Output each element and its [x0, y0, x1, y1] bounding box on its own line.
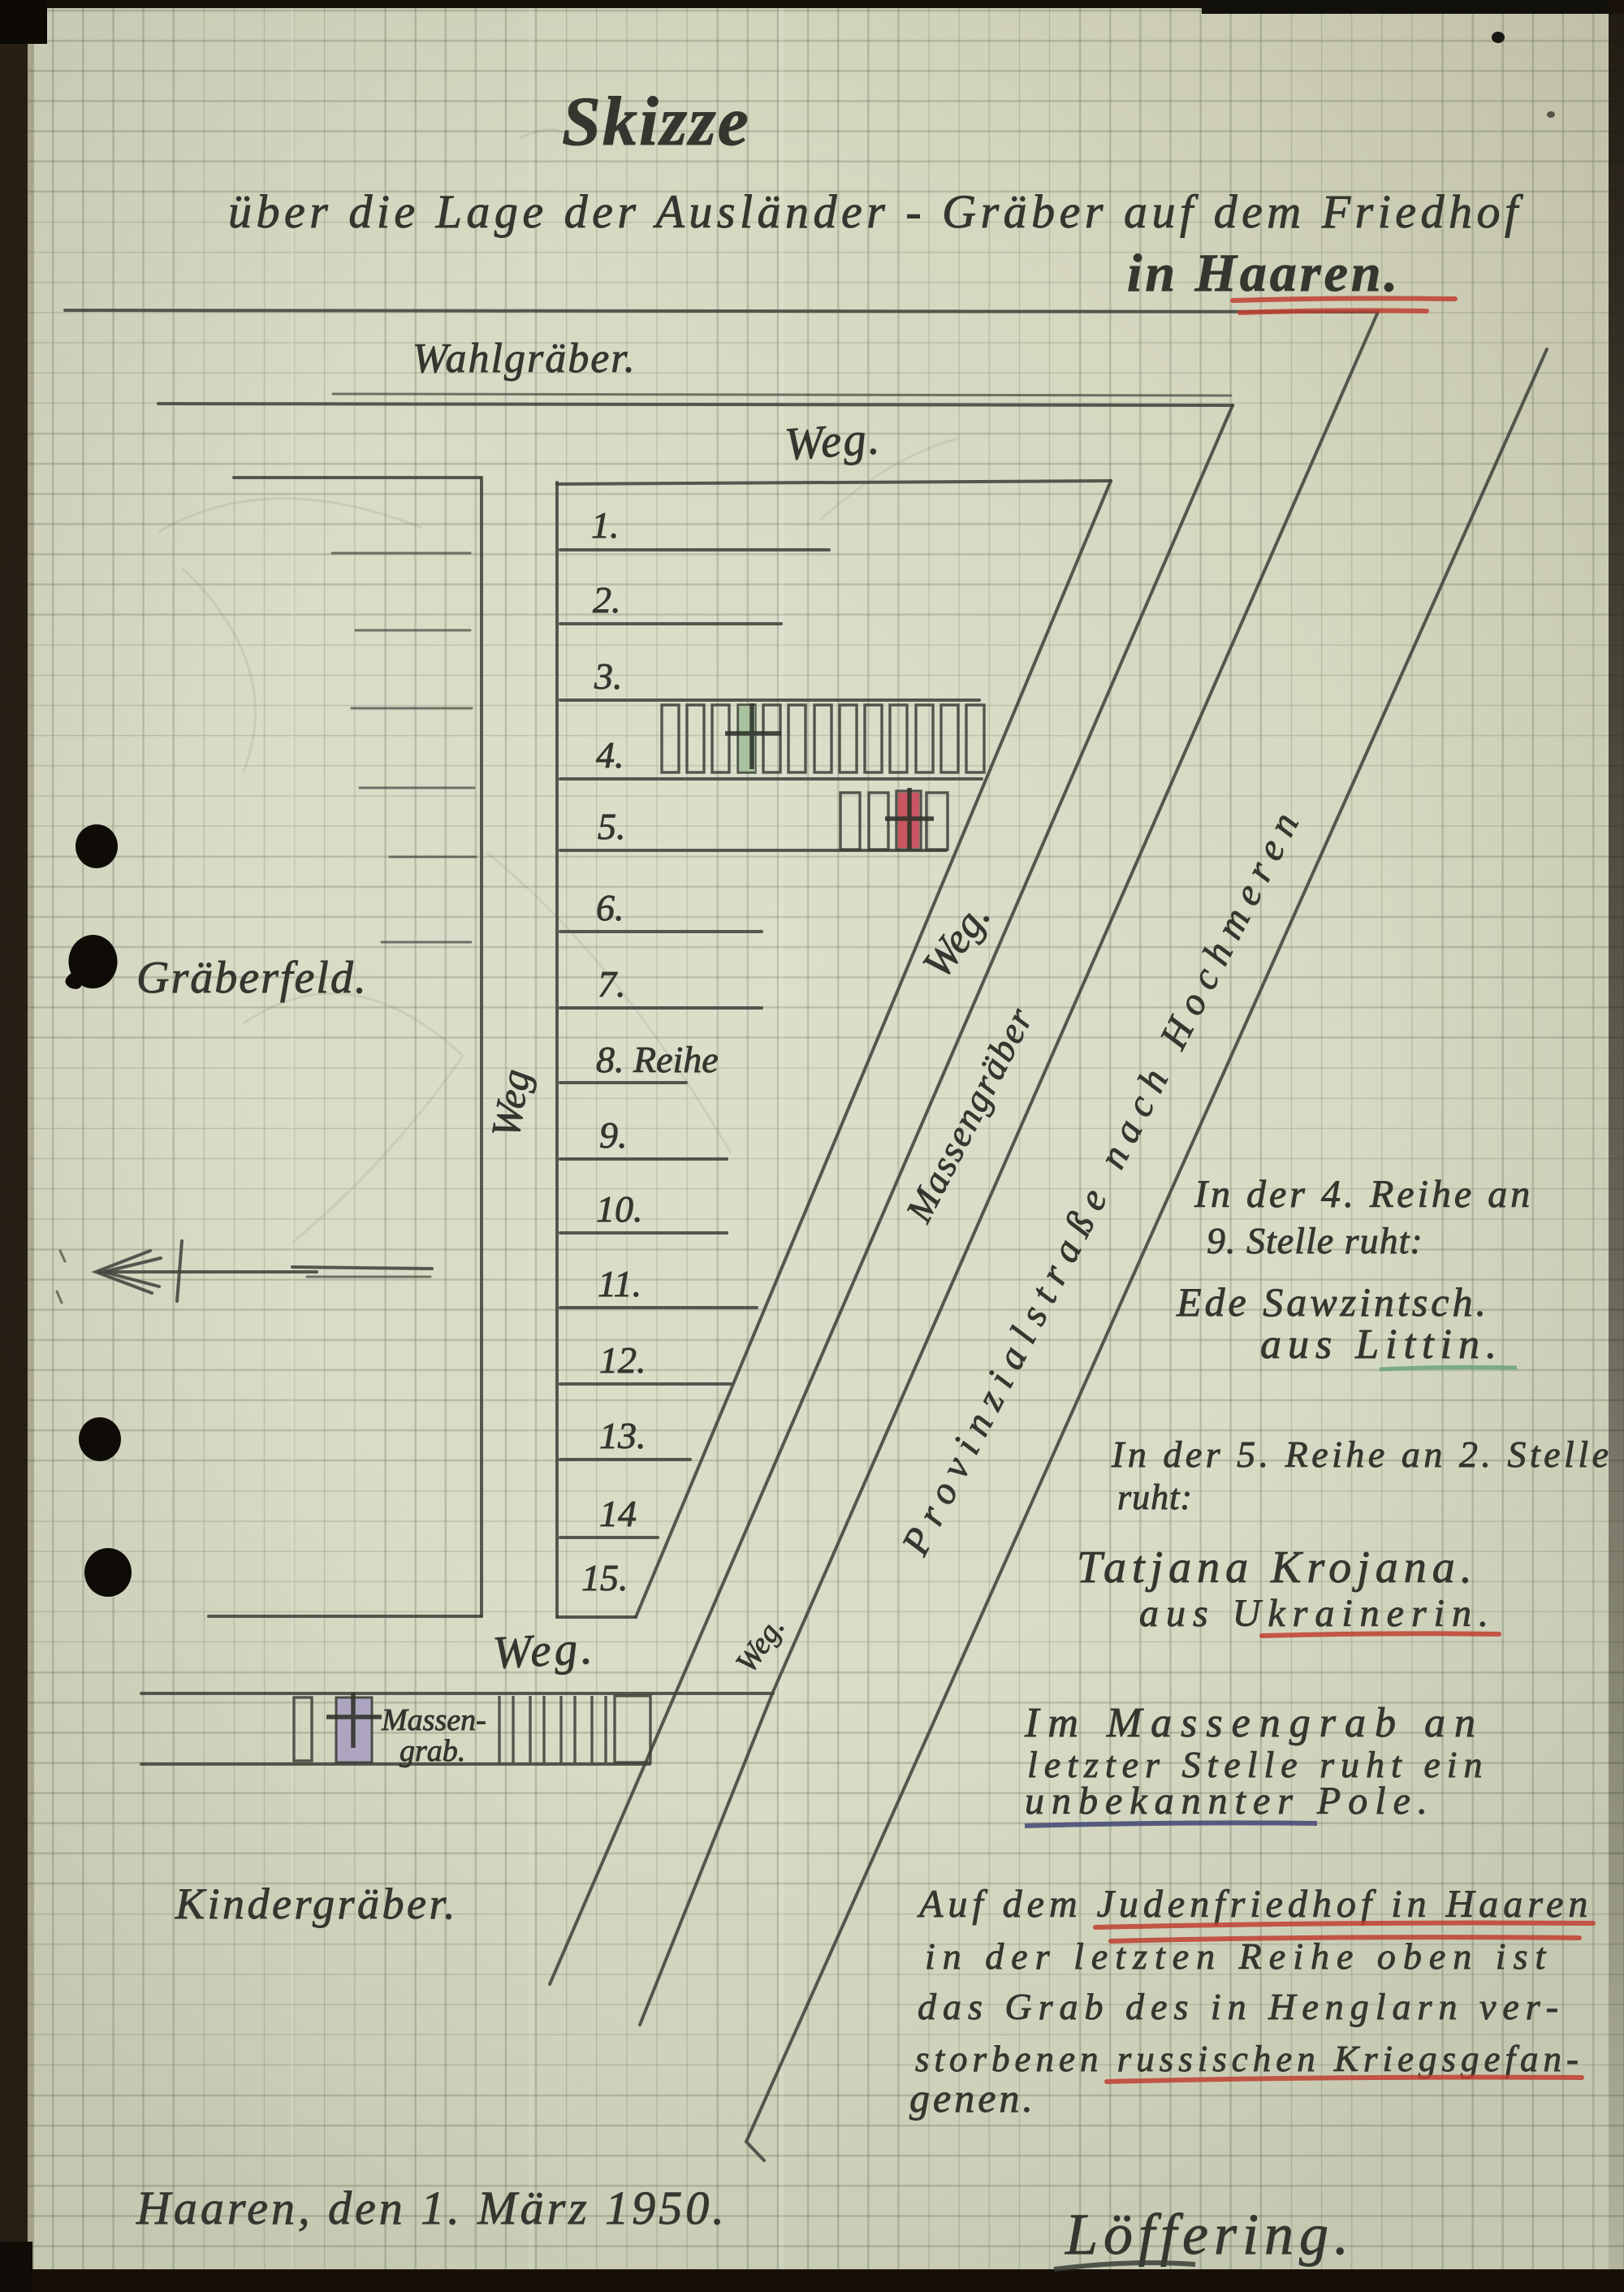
svg-text:in Haaren.: in Haaren. — [1127, 244, 1401, 303]
svg-text:Weg.: Weg. — [784, 413, 883, 470]
svg-text:genen.: genen. — [909, 2075, 1036, 2121]
svg-text:In der 5. Reihe an 2. Stelle: In der 5. Reihe an 2. Stelle — [1111, 1434, 1613, 1475]
svg-text:ruht:: ruht: — [1117, 1477, 1193, 1517]
svg-text:Wahlgräber.: Wahlgräber. — [412, 335, 637, 382]
svg-text:13.: 13. — [599, 1415, 646, 1456]
svg-text:10.: 10. — [596, 1188, 643, 1230]
svg-text:das Grab des in Henglarn ver-: das Grab des in Henglarn ver- — [918, 1986, 1565, 2027]
svg-text:14: 14 — [599, 1493, 637, 1534]
svg-text:Auf dem Judenfriedhof in Haare: Auf dem Judenfriedhof in Haaren — [917, 1883, 1592, 1926]
svg-text:Gräberfeld.: Gräberfeld. — [136, 953, 368, 1003]
svg-text:6.: 6. — [596, 887, 624, 928]
svg-text:Massen-: Massen- — [381, 1703, 486, 1737]
svg-text:7.: 7. — [598, 963, 626, 1005]
svg-text:Haaren, den 1. März 1950.: Haaren, den 1. März 1950. — [136, 2182, 728, 2234]
svg-text:Weg.: Weg. — [491, 1622, 596, 1679]
svg-text:Ede Sawzintsch.: Ede Sawzintsch. — [1176, 1279, 1489, 1325]
svg-text:in der letzten Reihe oben ist: in der letzten Reihe oben ist — [925, 1935, 1553, 1977]
svg-text:3.: 3. — [594, 655, 623, 697]
svg-text:Löffering.: Löffering. — [1065, 2202, 1354, 2267]
svg-text:aus Ukrainerin.: aus Ukrainerin. — [1139, 1592, 1496, 1635]
svg-text:Skizze: Skizze — [562, 82, 750, 160]
svg-text:Im Massengrab an: Im Massengrab an — [1024, 1700, 1484, 1746]
svg-text:8. Reihe: 8. Reihe — [596, 1039, 719, 1080]
svg-text:9.: 9. — [599, 1114, 628, 1156]
svg-text:Massengräber: Massengräber — [897, 1000, 1041, 1229]
svg-text:In der 4. Reihe an: In der 4. Reihe an — [1194, 1173, 1533, 1216]
svg-text:über die Lage der Ausländer -: über die Lage der Ausländer - Gräber auf… — [228, 185, 1523, 238]
svg-text:storbenen russischen Kriegsgef: storbenen russischen Kriegsgefan- — [915, 2039, 1583, 2079]
svg-text:1.: 1. — [591, 504, 620, 546]
svg-text:grab.: grab. — [400, 1734, 465, 1768]
svg-text:15.: 15. — [581, 1557, 628, 1598]
svg-text:2.: 2. — [593, 579, 621, 621]
svg-text:5.: 5. — [598, 806, 626, 847]
svg-text:12.: 12. — [599, 1339, 646, 1381]
svg-text:11.: 11. — [598, 1263, 641, 1304]
svg-text:Tatjana Krojana.: Tatjana Krojana. — [1077, 1542, 1478, 1593]
svg-text:Kindergräber.: Kindergräber. — [175, 1879, 458, 1928]
svg-text:4.: 4. — [596, 734, 624, 776]
svg-text:unbekannter Pole.: unbekannter Pole. — [1025, 1780, 1435, 1823]
svg-text:9. Stelle ruht:: 9. Stelle ruht: — [1207, 1220, 1423, 1261]
svg-text:aus Littin.: aus Littin. — [1260, 1321, 1503, 1368]
